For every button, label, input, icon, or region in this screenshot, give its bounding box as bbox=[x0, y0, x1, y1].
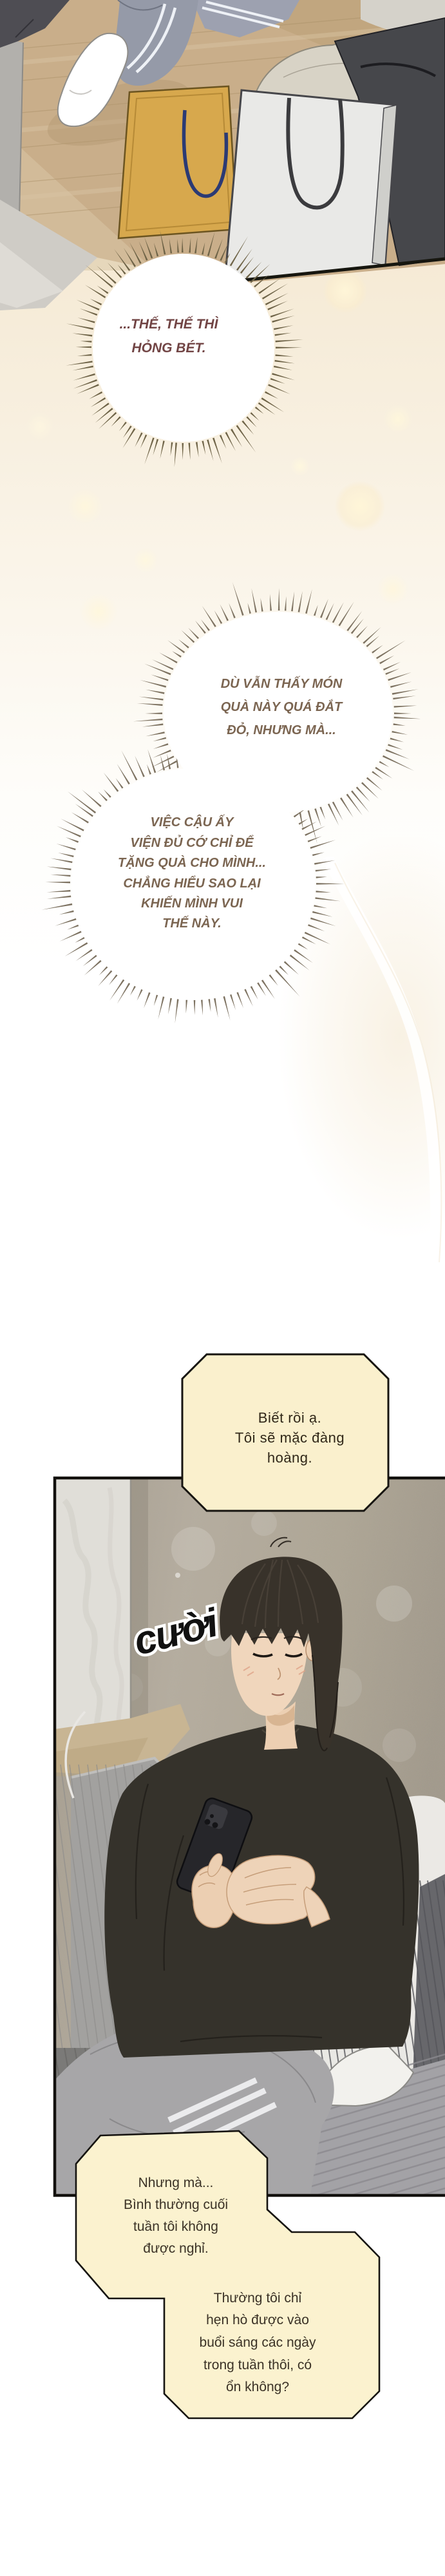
svg-text:KHIẾN MÌNH VUI: KHIẾN MÌNH VUI bbox=[141, 895, 243, 911]
svg-text:buổi sáng các ngày: buổi sáng các ngày bbox=[200, 2335, 316, 2350]
svg-text:Bình thường cuối: Bình thường cuối bbox=[124, 2197, 228, 2212]
svg-text:CHẲNG HIỂU SAO LẠI: CHẲNG HIỂU SAO LẠI bbox=[123, 876, 261, 891]
svg-text:Nhưng mà...: Nhưng mà... bbox=[138, 2175, 214, 2190]
svg-text:ổn không?: ổn không? bbox=[226, 2380, 289, 2394]
svg-text:Biết rồi ạ.: Biết rồi ạ. bbox=[258, 1410, 321, 1426]
svg-text:hoàng.: hoàng. bbox=[267, 1450, 312, 1466]
svg-text:TẶNG QUÀ CHO MÌNH...: TẶNG QUÀ CHO MÌNH... bbox=[118, 855, 266, 870]
svg-text:được nghỉ.: được nghỉ. bbox=[143, 2241, 208, 2256]
svg-text:Tôi sẽ mặc đàng: Tôi sẽ mặc đàng bbox=[235, 1430, 345, 1446]
svg-text:tuần tôi không: tuần tôi không bbox=[133, 2219, 218, 2234]
svg-text:Thường tôi chỉ: Thường tôi chỉ bbox=[214, 2291, 302, 2306]
svg-text:DÙ VẪN THẤY MÓN: DÙ VẪN THẤY MÓN bbox=[221, 676, 343, 691]
svg-text:trong tuần thôi, có: trong tuần thôi, có bbox=[204, 2358, 312, 2372]
svg-text:THẾ NÀY.: THẾ NÀY. bbox=[162, 915, 222, 931]
svg-text:hẹn hò được vào: hẹn hò được vào bbox=[206, 2313, 309, 2327]
svg-text:VIỆN ĐỦ CỚ CHỈ ĐỂ: VIỆN ĐỦ CỚ CHỈ ĐỂ bbox=[130, 835, 254, 850]
svg-text:VIỆC CẬU ẤY: VIỆC CẬU ẤY bbox=[151, 814, 235, 829]
svg-text:QUÀ NÀY QUÁ ĐẮT: QUÀ NÀY QUÁ ĐẮT bbox=[221, 699, 343, 714]
svg-text:...THẾ, THẾ THÌ: ...THẾ, THẾ THÌ bbox=[120, 316, 219, 332]
svg-text:ĐỎ, NHƯNG MÀ...: ĐỎ, NHƯNG MÀ... bbox=[227, 723, 336, 737]
svg-text:HỎNG BÉT.: HỎNG BÉT. bbox=[131, 340, 205, 355]
